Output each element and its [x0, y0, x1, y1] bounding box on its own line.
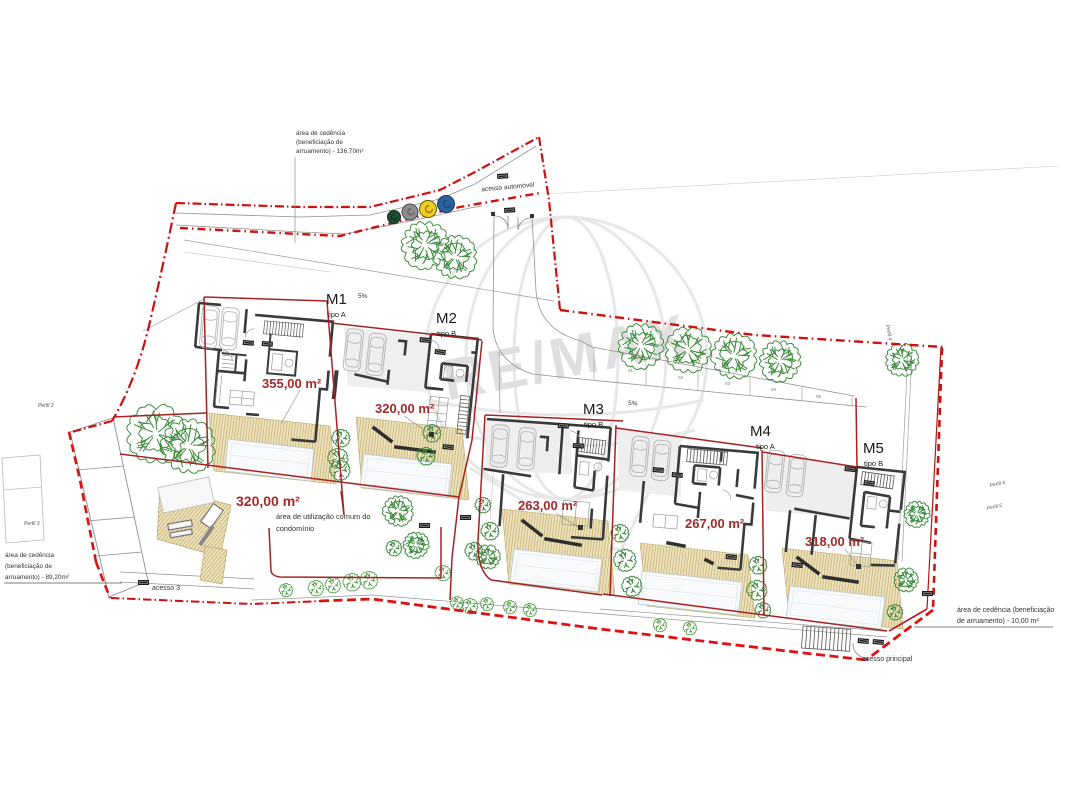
- svg-text:condomínio: condomínio: [276, 524, 314, 533]
- svg-text:área de cedência: área de cedência: [5, 552, 54, 559]
- svg-text:arruamento) - 89,20m²: arruamento) - 89,20m²: [5, 574, 69, 581]
- svg-text:01: 01: [628, 368, 634, 373]
- svg-text:5%: 5%: [358, 293, 368, 300]
- svg-text:arruamento) - 136,70m²: arruamento) - 136,70m²: [296, 148, 364, 155]
- svg-text:tipo B: tipo B: [584, 420, 603, 429]
- svg-text:de arruamento) - 10,00 m²: de arruamento) - 10,00 m²: [957, 618, 1039, 625]
- svg-text:(beneficiação de: (beneficiação de: [5, 563, 52, 570]
- svg-text:área de cedência (beneficiação: área de cedência (beneficiação: [957, 607, 1054, 614]
- svg-text:M5: M5: [863, 440, 884, 457]
- svg-text:M4: M4: [750, 423, 771, 440]
- svg-text:263,00 m²: 263,00 m²: [518, 498, 578, 513]
- svg-text:267,00 m²: 267,00 m²: [685, 516, 745, 531]
- svg-text:tipo B: tipo B: [864, 459, 883, 468]
- svg-text:tipo A: tipo A: [327, 310, 346, 319]
- svg-text:318,00 m²: 318,00 m²: [805, 534, 865, 549]
- svg-text:M1: M1: [326, 291, 347, 308]
- svg-text:5%: 5%: [628, 400, 638, 408]
- svg-text:Perfil 3: Perfil 3: [24, 521, 40, 527]
- svg-text:M2: M2: [436, 310, 457, 327]
- svg-text:05: 05: [816, 394, 822, 399]
- svg-text:355,00 m²: 355,00 m²: [262, 376, 322, 391]
- svg-text:Perfil 2: Perfil 2: [38, 403, 54, 409]
- svg-text:tipo B: tipo B: [437, 329, 456, 338]
- svg-text:tipo A: tipo A: [756, 442, 775, 451]
- svg-text:área de utilização comum do: área de utilização comum do: [276, 512, 371, 521]
- svg-text:320,00 m²: 320,00 m²: [236, 493, 300, 509]
- svg-text:área de cedência: área de cedência: [296, 130, 345, 137]
- svg-text:(beneficiação de: (beneficiação de: [296, 139, 343, 146]
- svg-text:M3: M3: [583, 401, 604, 418]
- svg-text:acesso 3: acesso 3: [152, 585, 180, 592]
- svg-text:04: 04: [771, 387, 777, 392]
- svg-text:03: 03: [725, 381, 731, 386]
- svg-text:320,00 m²: 320,00 m²: [375, 401, 435, 416]
- svg-text:02: 02: [678, 375, 684, 380]
- svg-text:acesso principal: acesso principal: [862, 656, 913, 663]
